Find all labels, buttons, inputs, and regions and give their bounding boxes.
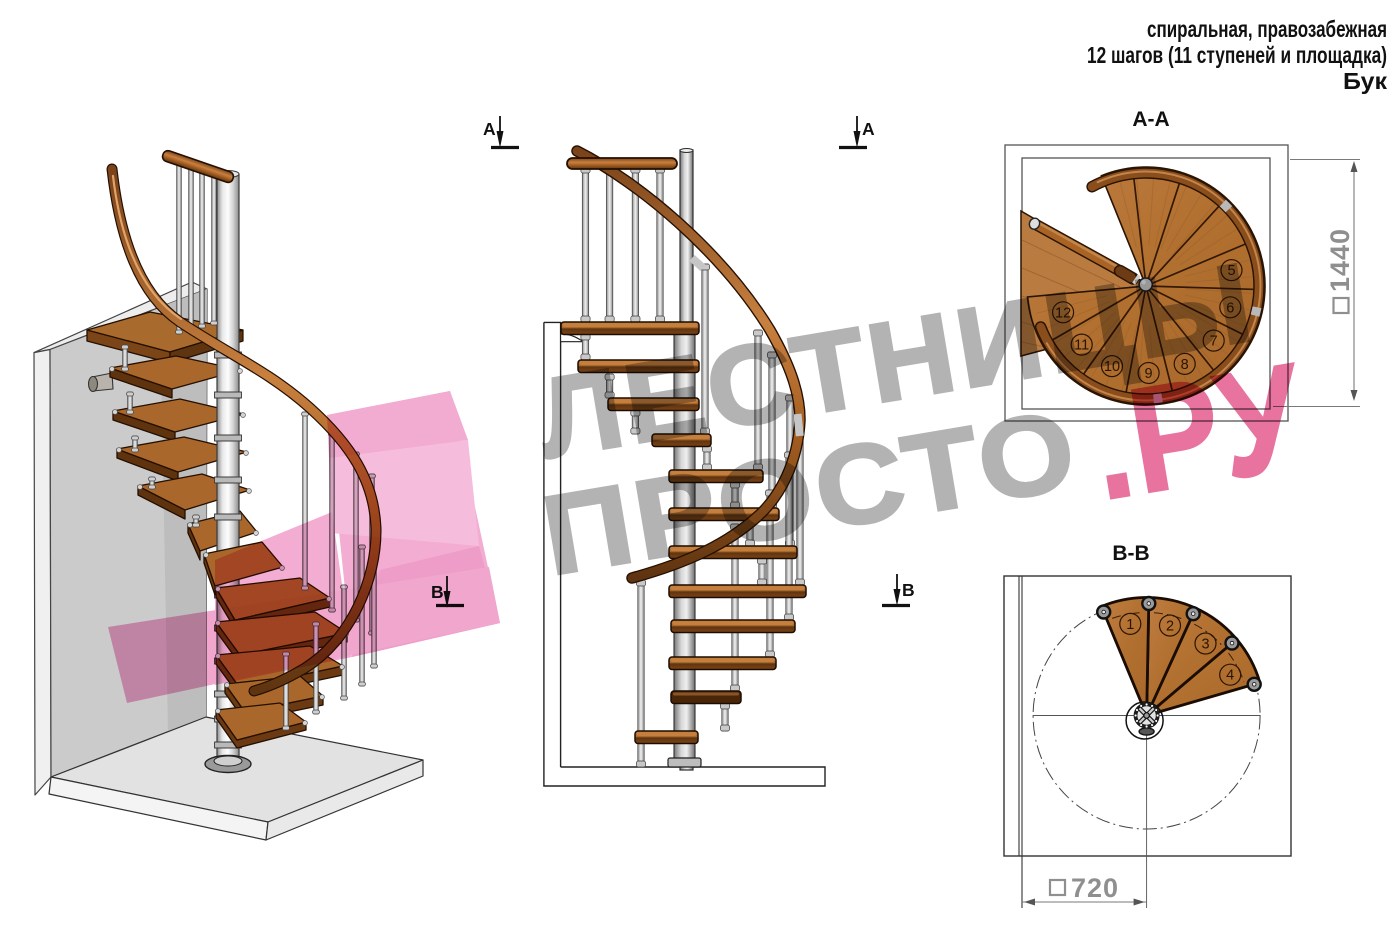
svg-text:В-В: В-В [1112,542,1149,565]
svg-text:2: 2 [1166,619,1174,635]
svg-text:1440: 1440 [1325,228,1355,292]
svg-text:3: 3 [1201,637,1209,653]
svg-text:А: А [483,119,496,139]
svg-text:720: 720 [1071,873,1119,903]
svg-text:А-А: А-А [1132,108,1169,131]
svg-text:Бук: Бук [1343,68,1388,94]
svg-text:1: 1 [1126,617,1134,633]
svg-text:А: А [862,119,875,139]
svg-text:4: 4 [1226,668,1234,684]
svg-text:спиральная, правозабежная: спиральная, правозабежная [1147,16,1387,42]
svg-text:.РУ: .РУ [1080,331,1317,532]
svg-text:В: В [902,580,915,600]
svg-text:12 шагов (11 ступеней и площад: 12 шагов (11 ступеней и площадка) [1087,42,1387,68]
